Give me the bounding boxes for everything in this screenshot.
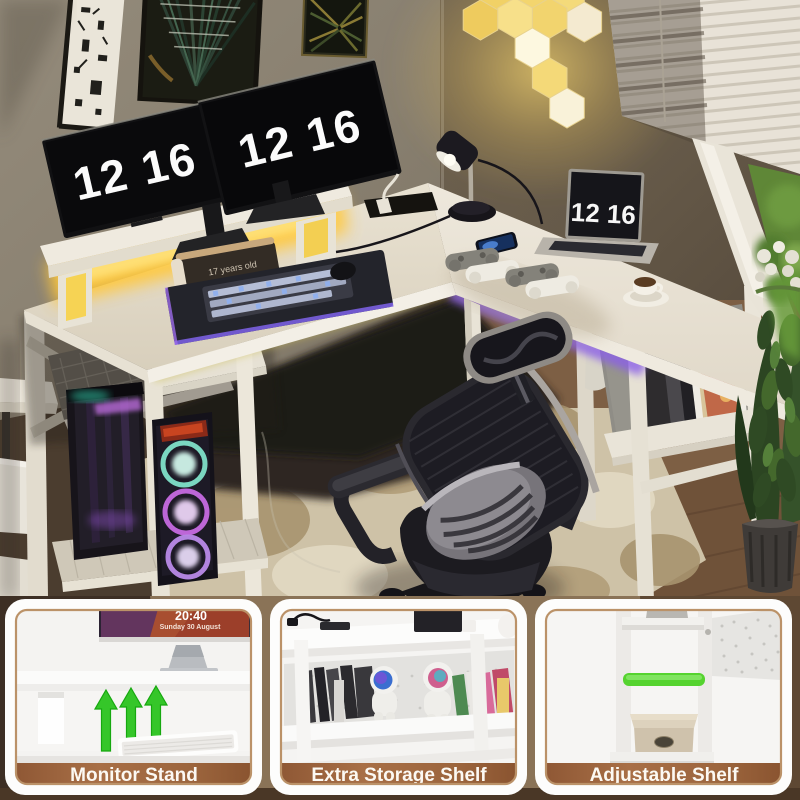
svg-text:Sunday 30 August: Sunday 30 August — [160, 624, 221, 631]
svg-text:Adjustable Shelf: Adjustable Shelf — [590, 765, 740, 786]
svg-text:Extra Storage Shelf: Extra Storage Shelf — [311, 765, 487, 786]
svg-text:12 16: 12 16 — [570, 197, 637, 230]
svg-text:Monitor Stand: Monitor Stand — [70, 765, 198, 786]
